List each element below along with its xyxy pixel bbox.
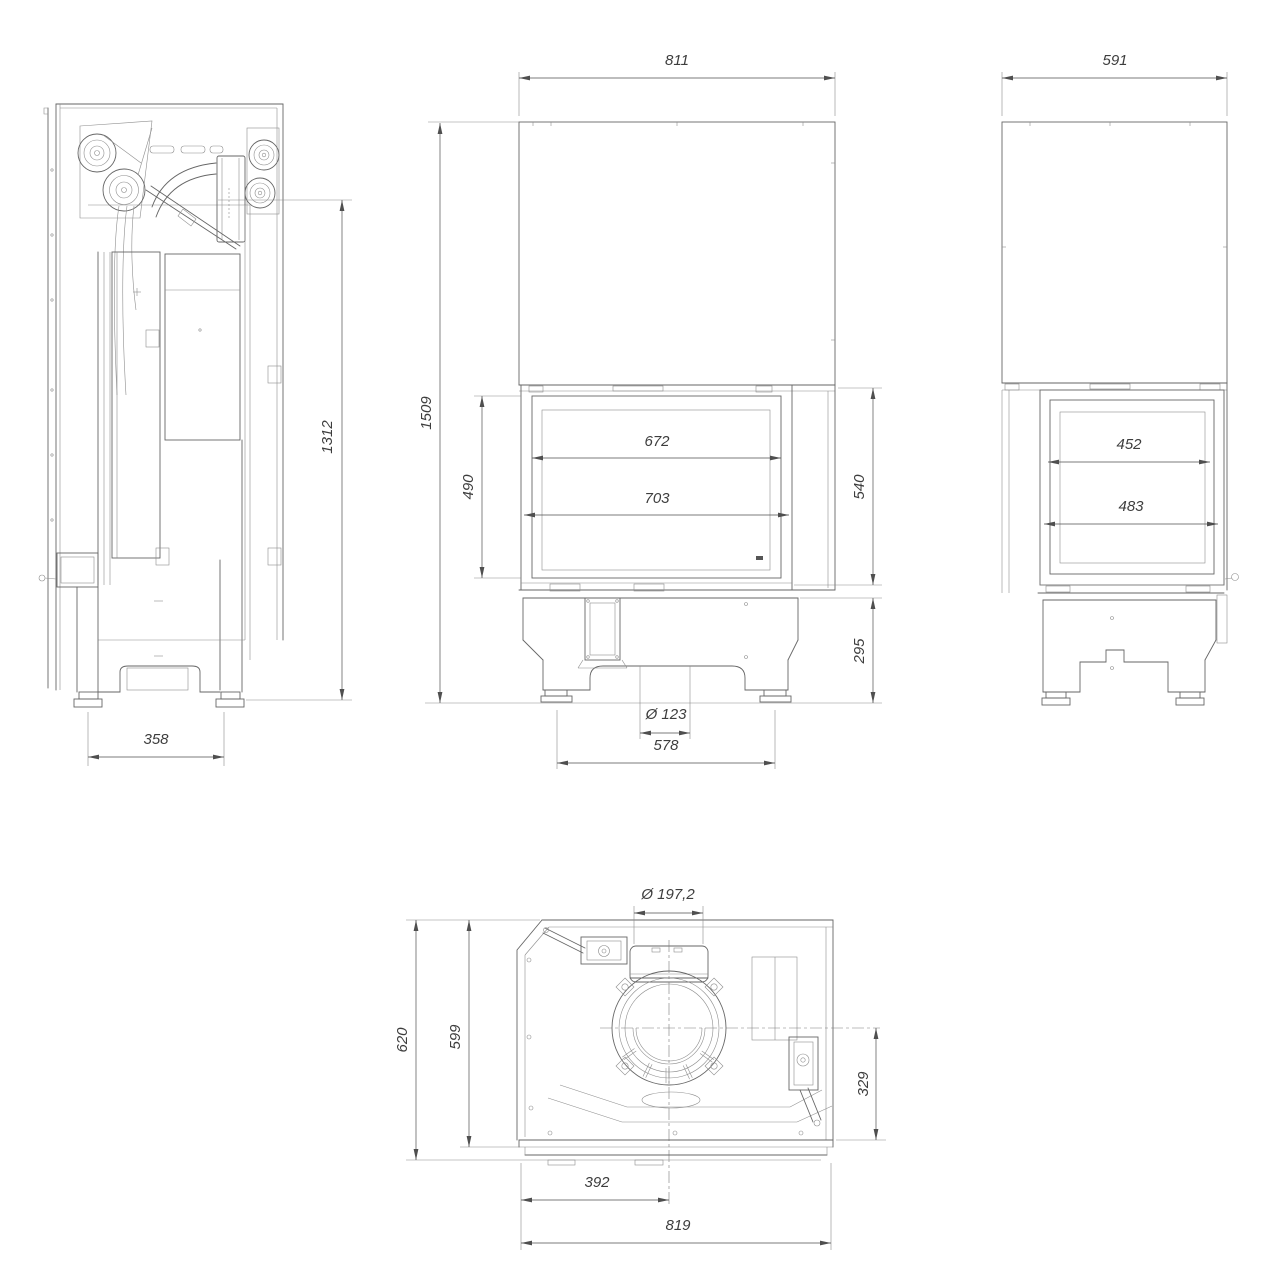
dim-right-glass-width: 452	[1048, 436, 1210, 462]
dim-top-depth-body-label: 599	[447, 1024, 464, 1050]
side-winch-mechanism	[78, 121, 223, 218]
dim-front-door-height-label: 540	[851, 474, 868, 500]
dim-right-glass-width-label: 452	[1116, 436, 1142, 453]
dim-front-door-height: 540	[794, 388, 882, 585]
glass-logo-mark	[756, 556, 763, 560]
foot	[541, 690, 572, 702]
right-side-view: 591 452 483	[1002, 52, 1239, 705]
dim-front-opening-width-label: 703	[644, 490, 670, 507]
top-view: Ø 197,2 620 599 329 392	[394, 886, 886, 1250]
dim-top-flue-offset-label: 392	[584, 1174, 610, 1191]
dim-front-glass-width-label: 672	[644, 433, 670, 450]
dim-front-glass-height: 490	[460, 396, 521, 578]
dim-side-base-width: 358	[88, 712, 224, 766]
dim-front-base-width-label: 578	[653, 737, 679, 754]
dim-front-width-label: 811	[665, 52, 689, 69]
side-flue-elbow	[152, 156, 245, 242]
dim-side-height-label: 1312	[319, 420, 336, 454]
right-door-frame	[1038, 383, 1239, 593]
flange-bolt-lug	[616, 1057, 634, 1075]
front-hood	[519, 122, 835, 385]
foot	[216, 692, 244, 707]
right-hood	[1002, 122, 1227, 383]
front-base	[425, 598, 882, 703]
pulley-icon	[103, 169, 145, 211]
side-counterweight-box	[112, 252, 160, 558]
door-handle-pin	[1232, 574, 1239, 581]
dim-top-flue-to-front: 329	[836, 1028, 886, 1140]
right-base	[1042, 595, 1227, 705]
flange-bolt-lug	[616, 978, 634, 996]
floor-oval-port	[642, 1092, 700, 1108]
dim-front-total-height-label: 1509	[418, 396, 435, 430]
dim-right-width: 591	[1002, 52, 1227, 116]
front-view: 811 1509 490 672 703 540	[418, 52, 882, 769]
side-glass-edge	[39, 252, 110, 585]
dim-front-outlet-diameter: Ø 123	[640, 700, 690, 739]
front-air-duct	[578, 598, 627, 668]
dim-top-depth-total: 620	[394, 920, 540, 1160]
dim-right-opening-width: 483	[1044, 498, 1218, 524]
side-view: 1312 358	[39, 104, 352, 766]
foot	[74, 692, 102, 707]
dim-front-width: 811	[519, 52, 835, 116]
dim-top-flue-diameter: Ø 197,2	[634, 886, 703, 944]
dim-front-base-height: 295	[800, 598, 882, 703]
foot	[1176, 692, 1204, 705]
dim-front-glass-height-label: 490	[460, 474, 477, 500]
foot	[760, 690, 791, 702]
dim-top-flue-to-front-label: 329	[855, 1071, 872, 1097]
dim-right-width-label: 591	[1102, 52, 1127, 69]
dim-front-total-height: 1509	[418, 122, 519, 703]
dim-top-depth-total-label: 620	[394, 1027, 411, 1053]
technical-drawing-page: 1312 358	[0, 0, 1280, 1280]
dim-front-outlet-diameter-label: Ø 123	[645, 706, 688, 723]
right-glass	[1060, 412, 1205, 563]
top-right-bracket	[789, 1037, 821, 1126]
foot	[1042, 692, 1070, 705]
dim-top-width-label: 819	[665, 1217, 691, 1234]
dim-side-base-width-label: 358	[143, 731, 169, 748]
front-door-frame	[519, 385, 835, 591]
dim-front-glass-width: 672	[532, 433, 781, 458]
side-back-duct-box	[165, 254, 240, 440]
dim-side-height: 1312	[218, 200, 352, 700]
pulley-icon	[78, 134, 116, 172]
dim-front-opening-width: 703	[524, 490, 789, 515]
drawing-canvas: 1312 358	[0, 0, 1280, 1280]
dim-top-width: 819	[521, 1163, 831, 1250]
side-base	[74, 601, 244, 707]
side-left-panel	[44, 104, 56, 690]
top-flue-collar	[600, 940, 880, 1207]
side-strut	[114, 186, 240, 395]
dim-top-flue-offset: 392	[521, 1163, 669, 1250]
side-right-pulleys	[245, 128, 279, 214]
dim-front-base-height-label: 295	[851, 638, 868, 665]
dim-right-opening-width-label: 483	[1118, 498, 1144, 515]
top-front-frame	[519, 1131, 833, 1165]
top-left-bracket	[543, 928, 627, 965]
dim-top-depth-body: 599	[447, 920, 519, 1147]
dim-top-flue-diameter-label: Ø 197,2	[640, 886, 695, 903]
top-interior-floor	[548, 1085, 832, 1122]
